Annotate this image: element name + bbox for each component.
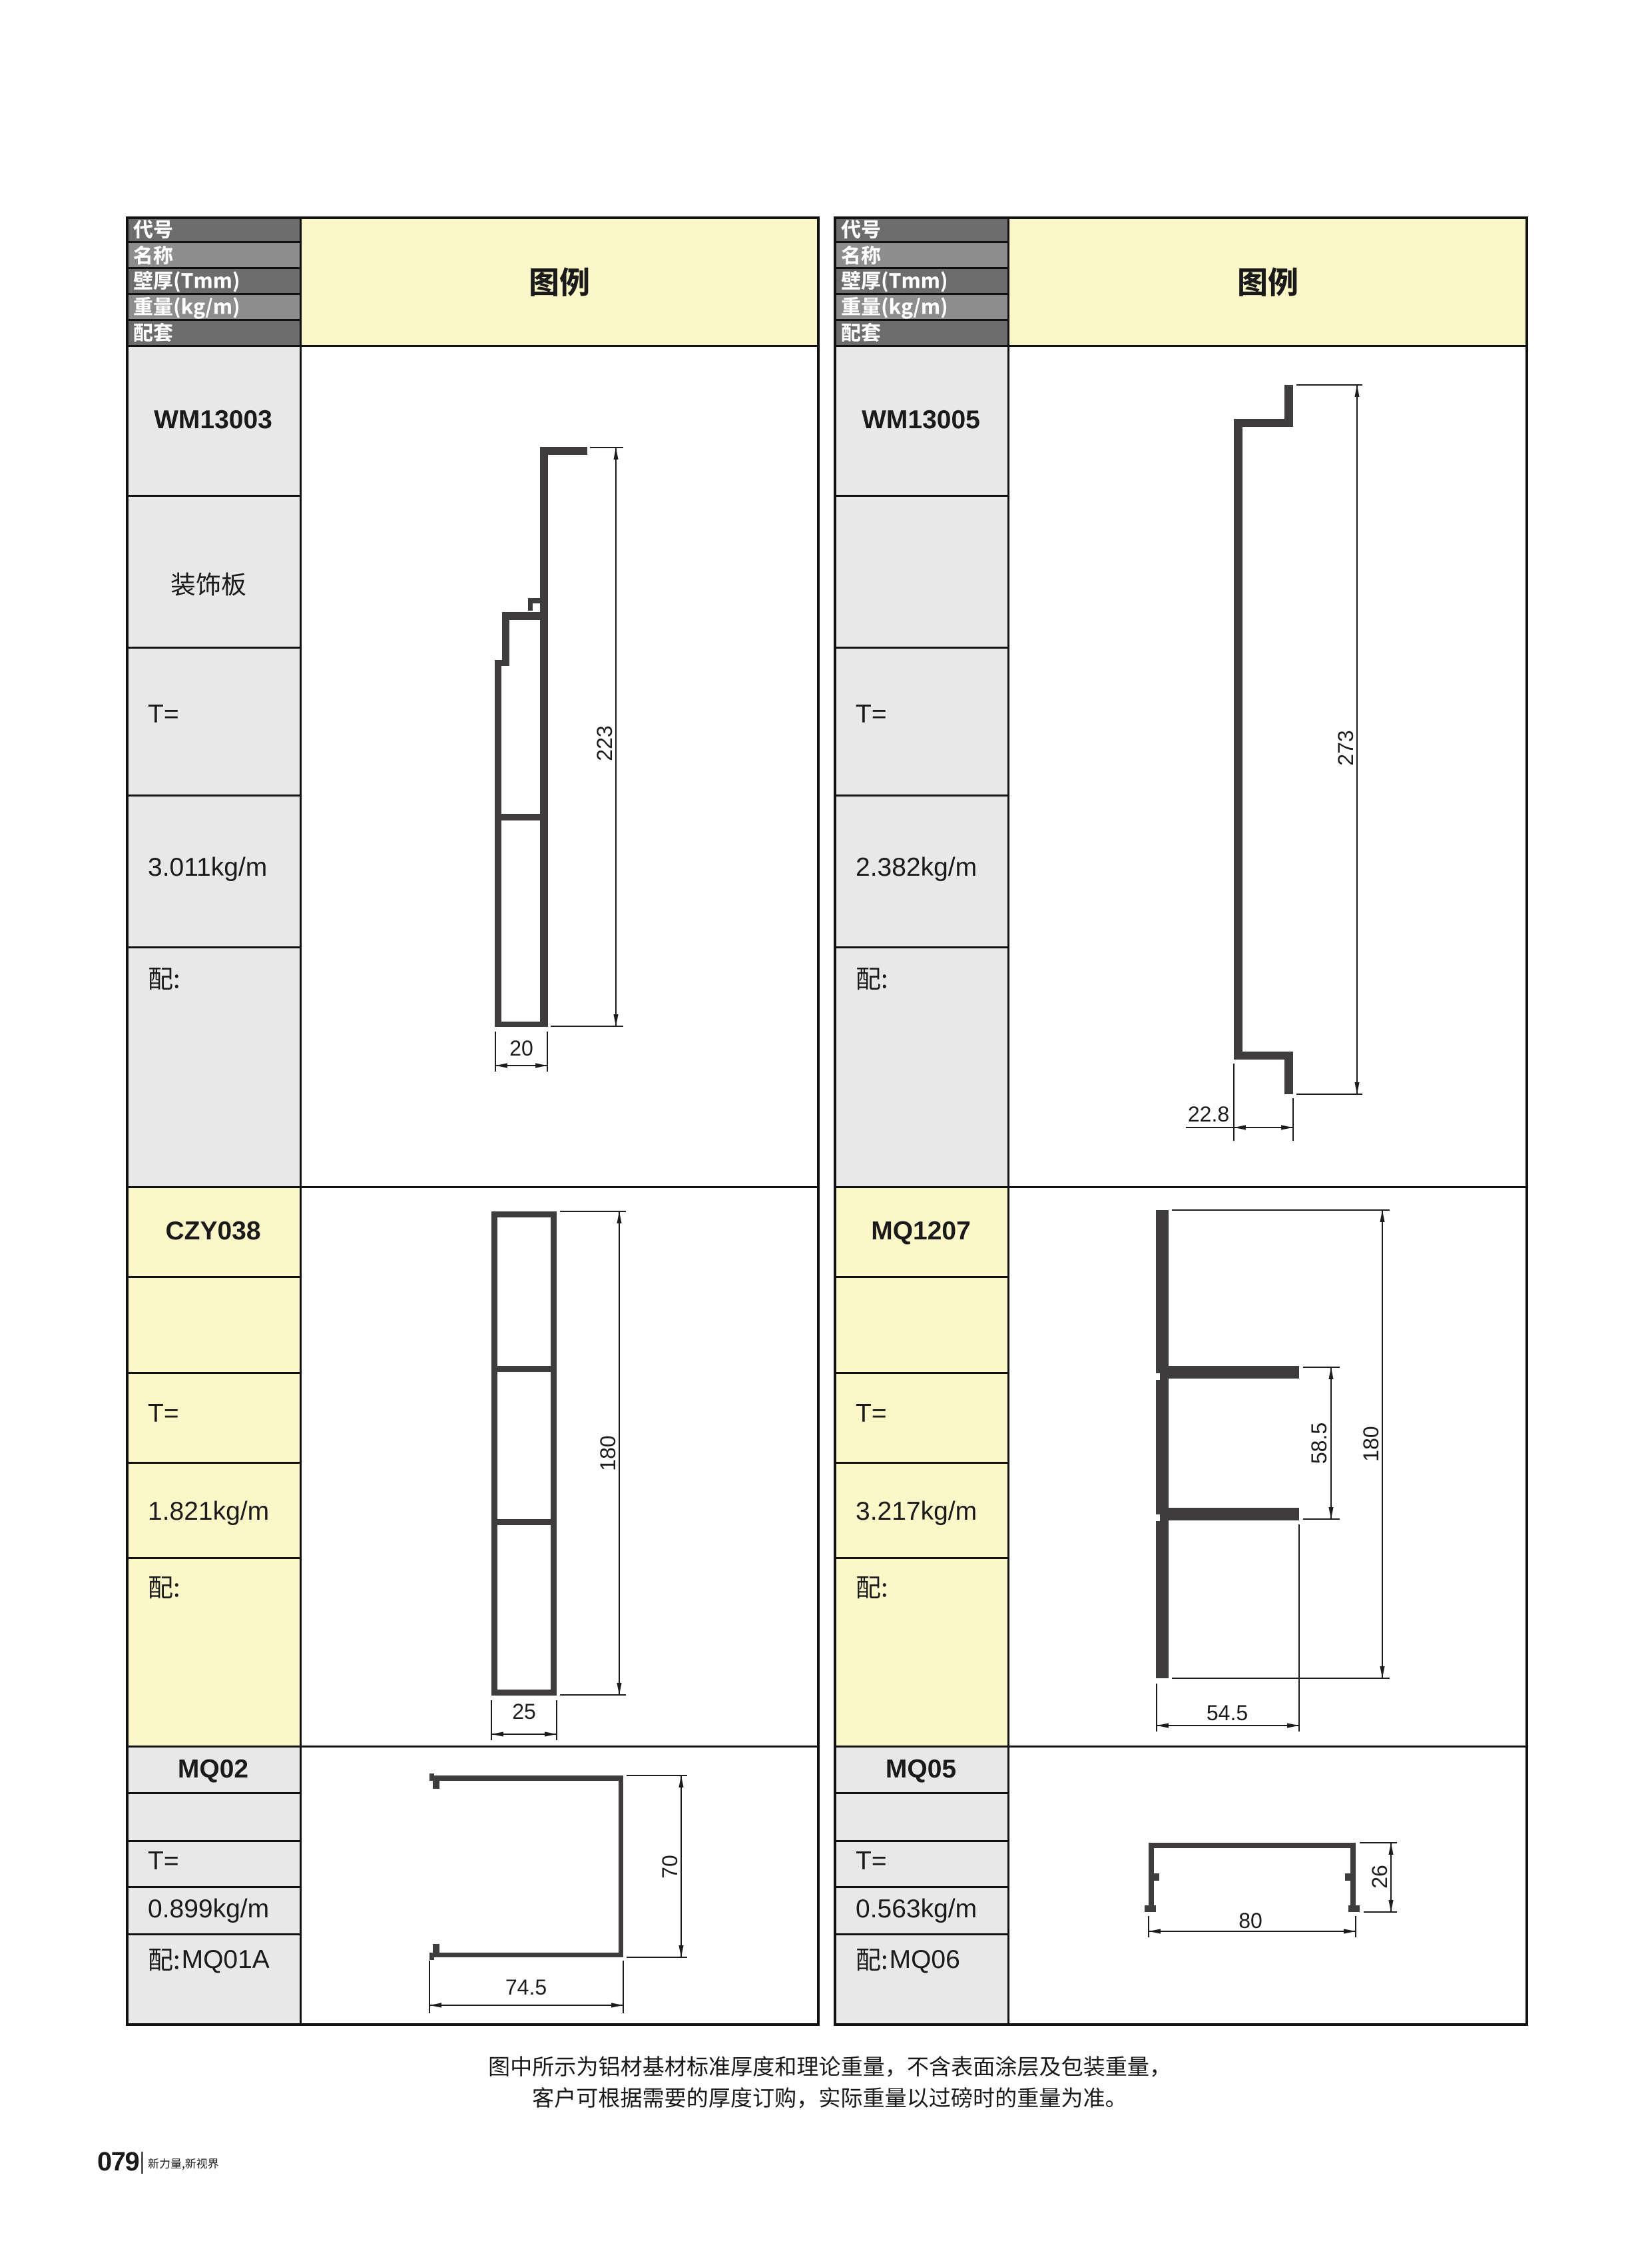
svg-text:20: 20 — [509, 1036, 533, 1060]
svg-text:25: 25 — [512, 1700, 536, 1724]
svg-text:54.5: 54.5 — [1207, 1701, 1248, 1725]
svg-text:273: 273 — [1334, 730, 1358, 765]
svg-text:180: 180 — [596, 1435, 620, 1470]
svg-text:74.5: 74.5 — [505, 1975, 547, 1999]
svg-text:22.8: 22.8 — [1188, 1102, 1229, 1126]
svg-text:70: 70 — [658, 1855, 682, 1879]
svg-text:180: 180 — [1359, 1426, 1383, 1461]
svg-text:26: 26 — [1368, 1865, 1392, 1889]
svg-text:223: 223 — [593, 725, 617, 761]
svg-text:80: 80 — [1239, 1909, 1262, 1933]
svg-text:58.5: 58.5 — [1307, 1423, 1331, 1464]
